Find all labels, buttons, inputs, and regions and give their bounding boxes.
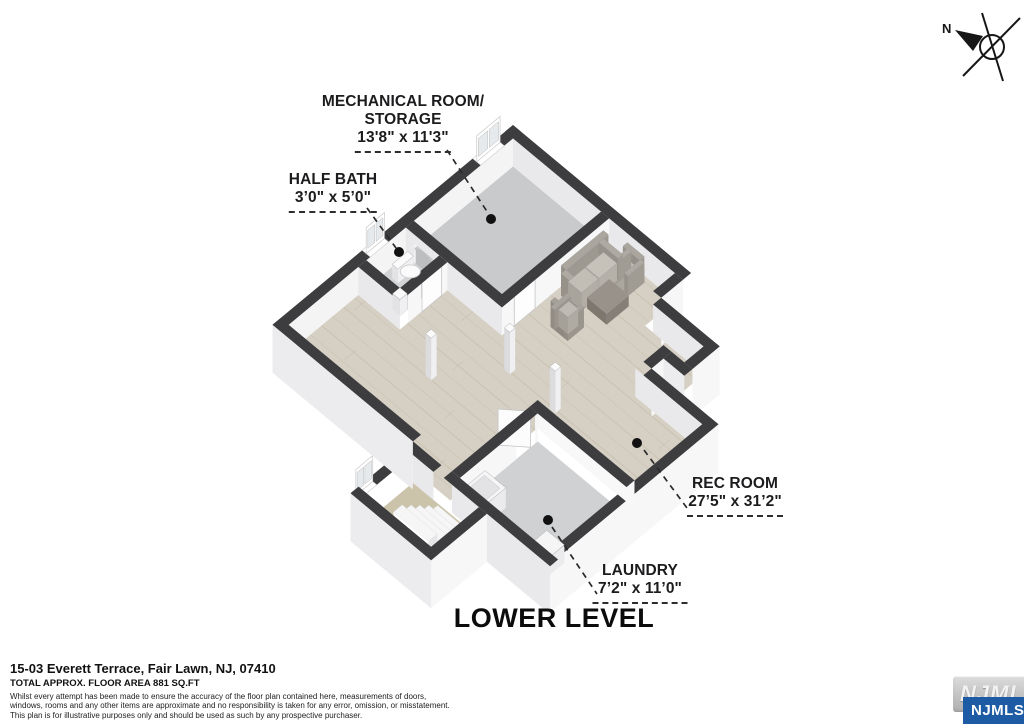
north-label: N bbox=[942, 21, 951, 36]
compass-icon bbox=[955, 13, 1020, 81]
room-name-line2: STORAGE bbox=[322, 111, 484, 129]
label-underline bbox=[289, 211, 377, 213]
room-label-laundry: LAUNDRY 7ʼ2ʺ x 11ʼ0ʺ bbox=[593, 562, 688, 604]
room-name: LAUNDRY bbox=[593, 562, 688, 580]
room-dims: 27ʼ5ʺ x 31ʼ2ʺ bbox=[687, 493, 783, 511]
property-address: 15-03 Everett Terrace, Fair Lawn, NJ, 07… bbox=[10, 661, 450, 676]
room-name: REC ROOM bbox=[687, 475, 783, 493]
room-name: MECHANICAL ROOM/ bbox=[322, 93, 484, 111]
floorplan-page: MECHANICAL ROOM/ STORAGE 13'8" x 11'3" H… bbox=[0, 0, 1024, 724]
floor-area-note: TOTAL APPROX. FLOOR AREA 881 SQ.FT bbox=[10, 678, 450, 689]
footer-block: 15-03 Everett Terrace, Fair Lawn, NJ, 07… bbox=[10, 661, 450, 720]
floor-title: LOWER LEVEL bbox=[454, 603, 655, 634]
room-dims: 7ʼ2ʺ x 11ʼ0ʺ bbox=[593, 580, 688, 598]
room-name: HALF BATH bbox=[289, 171, 377, 189]
room-dims: 3ʼ0ʺ x 5ʼ0ʺ bbox=[289, 189, 377, 207]
room-dims: 13'8" x 11'3" bbox=[322, 129, 484, 147]
room-label-half-bath: HALF BATH 3ʼ0ʺ x 5ʼ0ʺ bbox=[289, 171, 377, 213]
label-underline bbox=[687, 515, 783, 517]
njmls-badge: NJMLS bbox=[963, 697, 1024, 724]
disclaimer-text: Whilst every attempt has been made to en… bbox=[10, 692, 450, 720]
room-label-mechanical: MECHANICAL ROOM/ STORAGE 13'8" x 11'3" bbox=[322, 93, 484, 153]
label-underline bbox=[355, 151, 451, 153]
room-label-rec-room: REC ROOM 27ʼ5ʺ x 31ʼ2ʺ bbox=[687, 475, 783, 517]
